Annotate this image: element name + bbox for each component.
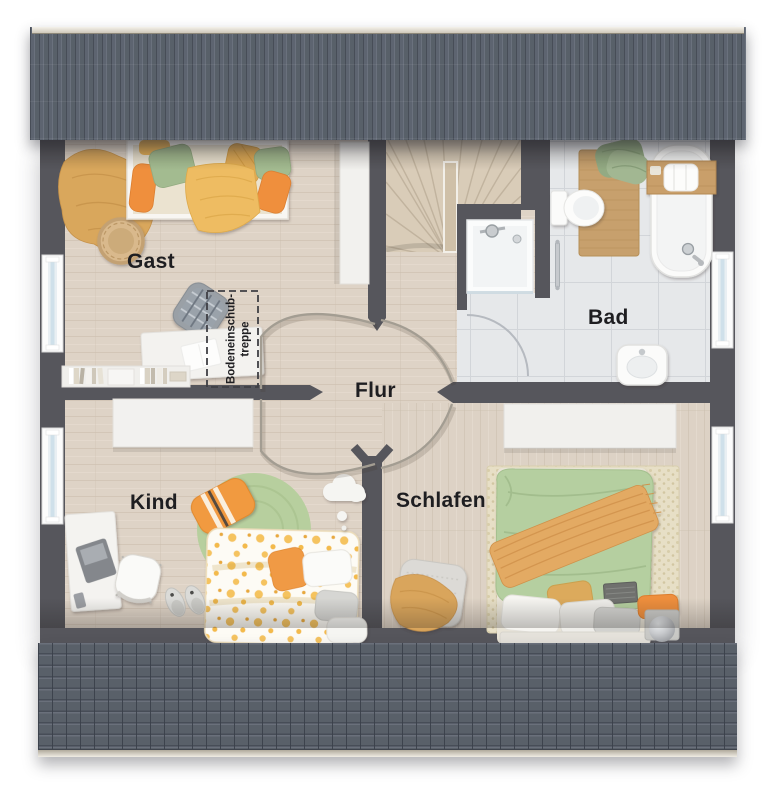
roof-ridge-bottom <box>38 749 737 757</box>
shower-glass <box>467 291 533 294</box>
schlafen-wardrobe <box>504 404 676 453</box>
stair-newel <box>444 162 457 252</box>
roof-top <box>30 27 746 140</box>
toilet <box>551 190 604 226</box>
window-gast-left <box>42 255 63 352</box>
window-bad-right <box>712 252 733 348</box>
attic-hatch-label-line1: Bodeneinschub- <box>225 294 239 384</box>
bidet <box>617 345 667 385</box>
roof-shadow-top <box>40 140 735 170</box>
room-label-gast: Gast <box>127 250 175 274</box>
roof-bottom <box>38 643 737 757</box>
bathtub-faucet <box>683 244 694 255</box>
floor-plan: Gast Bad Flur Kind Schlafen Bodeneinschu… <box>0 0 775 786</box>
room-label-kind: Kind <box>130 491 178 515</box>
shower-drain <box>513 235 521 243</box>
towel-rail <box>555 240 559 290</box>
window-kind-left <box>42 428 63 524</box>
roof-shadow-bottom <box>40 598 735 628</box>
shower-head <box>486 225 498 237</box>
attic-hatch-label-line2: treppe <box>239 294 253 384</box>
roof-ridge-top <box>32 27 744 34</box>
kind-bed <box>204 528 369 646</box>
kind-wardrobe <box>113 399 253 452</box>
attic-hatch-label: Bodeneinschub- treppe <box>225 294 252 384</box>
room-label-schlafen: Schlafen <box>396 489 486 513</box>
gast-shelf <box>62 366 190 387</box>
wall-shower-left <box>457 204 467 310</box>
room-label-flur: Flur <box>355 379 396 403</box>
wall-bad-schlafen <box>453 382 710 403</box>
window-schlafen-right <box>712 427 733 523</box>
kind-desk <box>65 511 122 611</box>
room-label-bad: Bad <box>588 306 629 330</box>
